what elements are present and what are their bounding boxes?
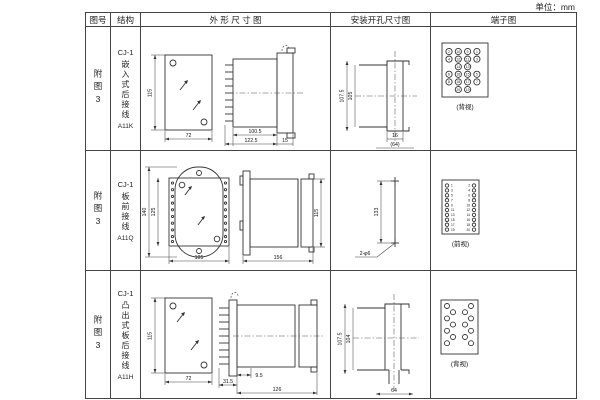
svg-text:13: 13	[451, 213, 455, 217]
dim-126: 126	[273, 387, 282, 393]
svg-text:8: 8	[448, 80, 450, 84]
header-mounting: 安装开孔尺寸图	[331, 13, 431, 27]
svg-text:16: 16	[466, 218, 470, 222]
row1-side-view: 100.5 122.5 15	[225, 45, 304, 146]
dim-107-5b: 107.5	[338, 332, 344, 345]
svg-text:7: 7	[475, 80, 477, 84]
dim-105w: 105	[195, 255, 204, 261]
row1-outline-svg: 115 72	[141, 27, 330, 150]
row3-outline-drawing: 115 72	[141, 271, 331, 398]
row3-fig-no: 附图3	[86, 271, 111, 398]
row3-terminal-svg: (背视)	[432, 272, 576, 398]
row1-structure: CJ-1 嵌入式后接线 A11K	[111, 27, 141, 151]
svg-text:20: 20	[456, 88, 460, 92]
catalog-page: 单位：mm 图号 结构 外 形 尺 寸 图 安装开孔尺寸图 端子图 附图3 CJ…	[0, 0, 600, 400]
dim-104: 104	[346, 334, 352, 343]
svg-text:4: 4	[448, 57, 450, 61]
svg-text:9: 9	[451, 203, 453, 207]
row3-model: CJ-1	[118, 289, 134, 298]
row2-outline-svg: 140 125 105	[141, 151, 330, 270]
dim-122-5: 122.5	[245, 138, 258, 144]
svg-text:1: 1	[475, 50, 477, 54]
row2-fig-no: 附图3	[86, 151, 111, 271]
hole-label-2phi6: 2-φ6	[360, 251, 371, 257]
svg-text:6: 6	[468, 194, 470, 198]
svg-text:18: 18	[466, 223, 470, 227]
row2-structure-code: A11Q	[117, 235, 133, 242]
dim-133: 133	[374, 208, 380, 217]
svg-text:15: 15	[451, 218, 455, 222]
svg-text:4: 4	[468, 189, 470, 193]
svg-text:2: 2	[448, 50, 450, 54]
dim-115: 115	[148, 89, 154, 97]
svg-text:10: 10	[466, 203, 470, 207]
row1-front-view: 115 72	[148, 55, 213, 142]
row1-model: CJ-1	[118, 48, 134, 57]
svg-text:15: 15	[465, 73, 469, 77]
svg-text:5: 5	[451, 194, 453, 198]
row1-mounting-svg: 107.5 105 16 (64)	[331, 27, 430, 150]
svg-text:9: 9	[466, 50, 468, 54]
svg-text:16: 16	[456, 73, 460, 77]
row2-terminal-caption: (前视)	[451, 239, 468, 248]
dim-156: 156	[274, 255, 283, 261]
dim-64p: (64)	[390, 142, 399, 148]
svg-text:17: 17	[465, 80, 469, 84]
dim-9-5: 9.5	[255, 373, 262, 379]
terminal-dot-columns	[171, 182, 226, 243]
row1-mounting-drawing: 107.5 105 16 (64)	[331, 27, 431, 151]
dim-105: 105	[348, 92, 354, 101]
svg-text:11: 11	[465, 57, 469, 61]
dim-72b: 72	[186, 376, 192, 382]
dim-16: 16	[392, 133, 398, 139]
svg-text:17: 17	[451, 223, 455, 227]
svg-text:8: 8	[468, 198, 470, 202]
svg-text:19: 19	[451, 228, 455, 232]
row1-structure-code: A11K	[118, 123, 133, 130]
row1-outline-drawing: 115 72	[141, 27, 331, 151]
row2-structure-type: 板前接线	[120, 192, 131, 232]
dim-31-5: 31.5	[223, 379, 233, 385]
row3-front-view: 115 72	[148, 298, 213, 385]
row2-terminal-svg: (前视) 1357911131517192468101214161820	[432, 151, 576, 270]
row2-front-view: 140 125 105	[142, 167, 229, 264]
svg-text:3: 3	[451, 189, 453, 193]
svg-text:14: 14	[456, 65, 460, 69]
row1-terminal-caption: (背视)	[456, 102, 473, 111]
svg-text:19: 19	[465, 88, 469, 92]
svg-text:12: 12	[466, 208, 470, 212]
svg-text:14: 14	[466, 213, 470, 217]
dim-115c: 115	[148, 331, 154, 339]
row3-terminal-diagram: (背视)	[431, 271, 576, 398]
row2-mounting-svg: 133 2-φ6	[331, 151, 430, 270]
header-fig-no: 图号	[86, 13, 111, 27]
svg-text:11: 11	[451, 208, 455, 212]
row3-structure-code: A11H	[118, 374, 134, 381]
row3-mounting-drawing: 107.5 104 64	[331, 271, 431, 398]
dimension-table: 图号 结构 外 形 尺 寸 图 安装开孔尺寸图 端子图 附图3 CJ-1 嵌入式…	[85, 12, 577, 399]
svg-text:10: 10	[456, 50, 460, 54]
row3-mounting-svg: 107.5 104 64	[331, 272, 430, 398]
row2-structure: CJ-1 板前接线 A11Q	[111, 151, 141, 271]
svg-text:2: 2	[468, 184, 470, 188]
svg-text:12: 12	[456, 57, 460, 61]
svg-text:3: 3	[475, 57, 477, 61]
svg-text:20: 20	[466, 228, 470, 232]
row1-structure-type: 嵌入式后接线	[120, 60, 131, 120]
svg-text:6: 6	[448, 73, 450, 77]
row1-fig-no: 附图3	[86, 27, 111, 151]
dim-72: 72	[186, 133, 192, 139]
header-structure: 结构	[111, 13, 141, 27]
row3-structure-type: 凸出式板后接线	[120, 301, 131, 371]
svg-text:5: 5	[475, 73, 477, 77]
row3-outline-svg: 115 72	[141, 272, 330, 398]
row3-terminal-caption: (背视)	[450, 359, 467, 368]
dim-15: 15	[282, 138, 288, 144]
svg-text:18: 18	[456, 80, 460, 84]
svg-text:13: 13	[465, 65, 469, 69]
row2-terminal-diagram: (前视) 1357911131517192468101214161820	[431, 151, 576, 271]
row2-mounting-drawing: 133 2-φ6	[331, 151, 431, 271]
row2-outline-drawing: 140 125 105	[141, 151, 331, 271]
dim-64: 64	[391, 388, 397, 394]
row3-side-view: 9.5 31.5 126	[219, 292, 323, 395]
row1-terminal-diagram: (背视) 2109141211314136161558181772019	[431, 27, 576, 151]
dim-140: 140	[142, 208, 148, 217]
dim-115b: 115	[314, 209, 320, 217]
dim-125: 125	[151, 208, 157, 217]
svg-text:7: 7	[451, 198, 453, 202]
row2-model: CJ-1	[118, 180, 134, 189]
svg-text:1: 1	[451, 184, 453, 188]
header-terminal: 端子图	[431, 13, 576, 27]
row2-side-view: 156 115	[240, 171, 325, 264]
header-outline: 外 形 尺 寸 图	[141, 13, 331, 27]
row1-terminal-svg: (背视) 2109141211314136161558181772019	[432, 27, 576, 150]
dim-100-5: 100.5	[249, 129, 262, 135]
dim-107-5: 107.5	[340, 89, 346, 102]
row3-structure: CJ-1 凸出式板后接线 A11H	[111, 271, 141, 398]
